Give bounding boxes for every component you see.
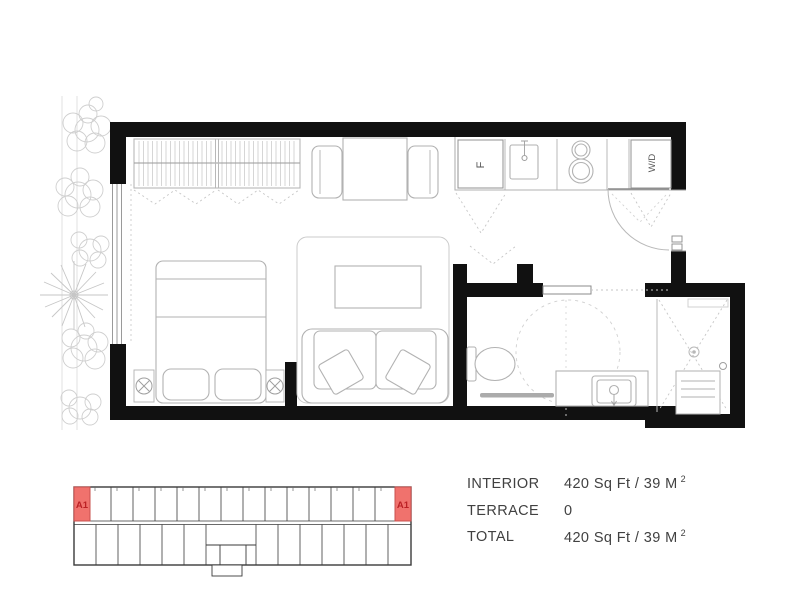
wall-top xyxy=(110,122,686,137)
wall-right-upper xyxy=(671,122,686,190)
bed-pillow-right xyxy=(215,369,261,400)
wall-left-upper xyxy=(110,122,126,184)
unit-label-right: A1 xyxy=(397,500,410,511)
unit-label-left: A1 xyxy=(76,500,89,511)
stat-value: 0 xyxy=(564,501,575,519)
unit-highlight-right: A1 xyxy=(395,487,411,521)
key-plan: A1 A1 xyxy=(74,487,411,576)
kitchen: F W/D xyxy=(455,137,671,233)
grab-bar xyxy=(480,393,554,398)
shower-bench xyxy=(676,371,720,414)
dining-table xyxy=(343,138,407,200)
kitchen-counter-edge xyxy=(455,137,671,190)
dining-set xyxy=(312,138,438,200)
fridge-label: F xyxy=(475,161,487,168)
stat-value: 420 Sq Ft / 39 M2 xyxy=(564,528,686,546)
entry-door-swing-arc xyxy=(608,189,669,250)
sleeping-area xyxy=(134,261,284,403)
entry-clearance-dashed xyxy=(612,194,667,222)
bed-pillow-left xyxy=(163,369,209,400)
bush-1 xyxy=(63,97,111,153)
closet xyxy=(134,139,300,204)
stat-label: INTERIOR xyxy=(467,476,564,492)
shower-shelf xyxy=(688,299,728,307)
living-area xyxy=(297,237,449,403)
shower-control xyxy=(720,363,727,370)
wall-shower-right xyxy=(730,283,745,428)
stat-row-total: TOTAL 420 Sq Ft / 39 M2 xyxy=(467,528,787,546)
niche-bifold-dashed xyxy=(470,246,516,264)
toilet xyxy=(467,347,515,381)
closet-bifold-doors-dashed xyxy=(134,190,299,204)
agave-plant xyxy=(40,261,108,329)
area-stats: INTERIOR 420 Sq Ft / 39 M2 TERRACE 0 TOT… xyxy=(467,474,787,554)
window-left-wall xyxy=(113,184,132,344)
wall-bath-top xyxy=(453,283,543,297)
coffee-table xyxy=(335,266,421,308)
wall-stub-sofa xyxy=(285,362,297,406)
dining-chair-right xyxy=(408,146,438,198)
bush-5 xyxy=(61,390,101,425)
stat-row-terrace: TERRACE 0 xyxy=(467,501,787,519)
stat-value: 420 Sq Ft / 39 M2 xyxy=(564,474,686,492)
fridge-door-swing-dashed xyxy=(456,193,506,233)
sofa xyxy=(302,329,448,403)
cooktop xyxy=(569,141,593,183)
stat-label: TERRACE xyxy=(467,503,564,519)
landscape-plants xyxy=(40,96,111,430)
bush-2 xyxy=(56,168,103,217)
kitchen-sink xyxy=(510,141,538,179)
dining-chair-left xyxy=(312,146,342,198)
keyplan-outline xyxy=(74,487,411,565)
washer-dryer-label: W/D xyxy=(647,154,658,173)
wall-bottom xyxy=(110,406,686,420)
vanity-sink xyxy=(556,371,648,406)
unit-highlight-left: A1 xyxy=(74,487,90,521)
stat-label: TOTAL xyxy=(467,529,564,545)
kitchen-counter-dividers xyxy=(505,139,629,190)
bush-4 xyxy=(62,323,108,369)
shower xyxy=(657,299,728,414)
bathroom xyxy=(467,286,668,416)
stat-row-interior: INTERIOR 420 Sq Ft / 39 M2 xyxy=(467,474,787,492)
